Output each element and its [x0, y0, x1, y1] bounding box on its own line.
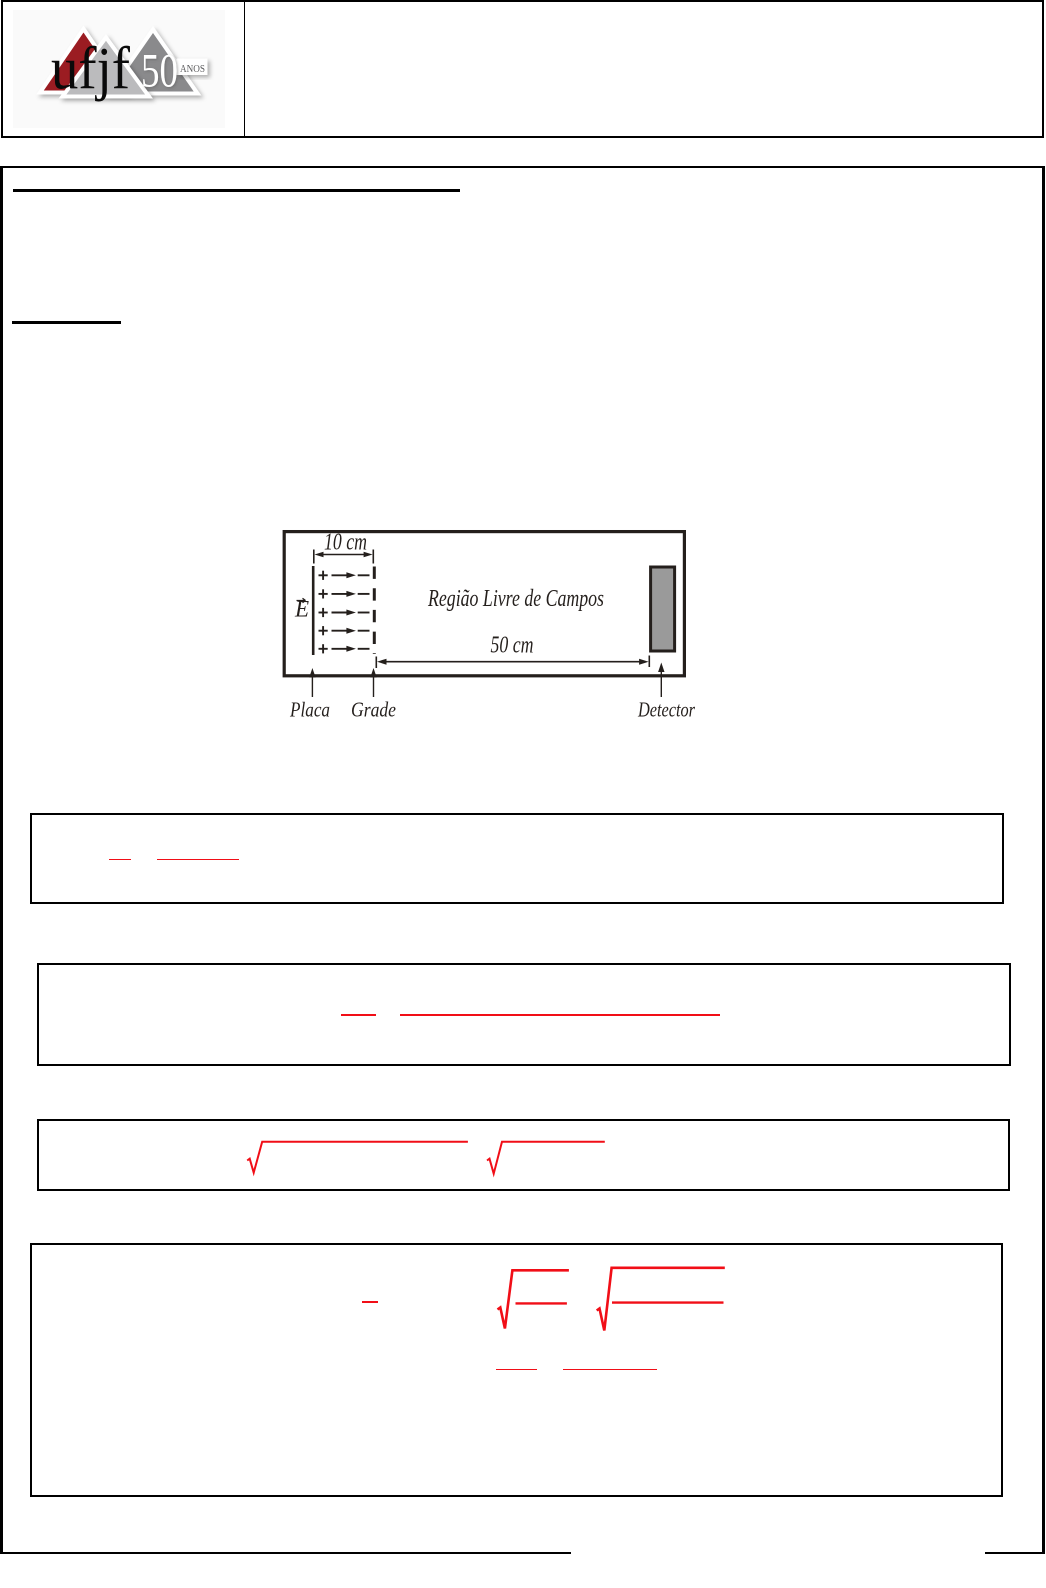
svg-text:Grade: Grade — [351, 698, 396, 722]
svg-text:50: 50 — [141, 45, 178, 98]
svg-text:ufjf: ufjf — [51, 36, 130, 102]
svg-text:Placa: Placa — [289, 698, 330, 722]
svg-text:50 cm: 50 cm — [491, 633, 534, 659]
svg-text:10 cm: 10 cm — [324, 530, 367, 556]
svg-text:Região Livre de Campos: Região Livre de Campos — [427, 586, 604, 612]
svg-text:ANOS: ANOS — [180, 63, 205, 75]
svg-text:Detector: Detector — [637, 698, 695, 722]
